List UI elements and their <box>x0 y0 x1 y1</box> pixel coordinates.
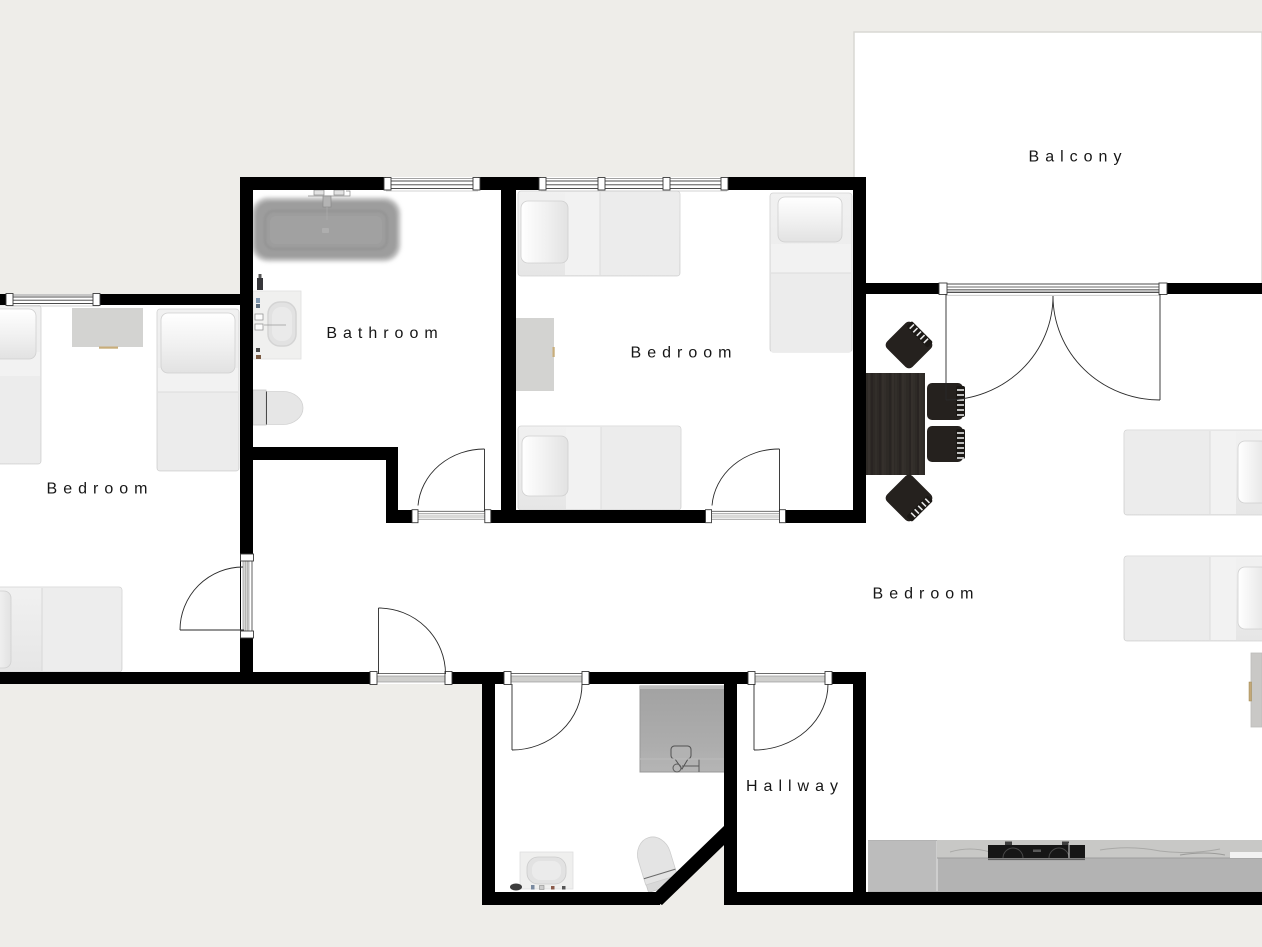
svg-text:Bedroom: Bedroom <box>873 586 980 603</box>
svg-text:Balcony: Balcony <box>1029 149 1128 166</box>
svg-text:Bedroom: Bedroom <box>47 481 154 498</box>
svg-text:Hallway: Hallway <box>746 778 844 795</box>
svg-text:Bedroom: Bedroom <box>631 345 738 362</box>
svg-text:Bathroom: Bathroom <box>326 325 443 342</box>
